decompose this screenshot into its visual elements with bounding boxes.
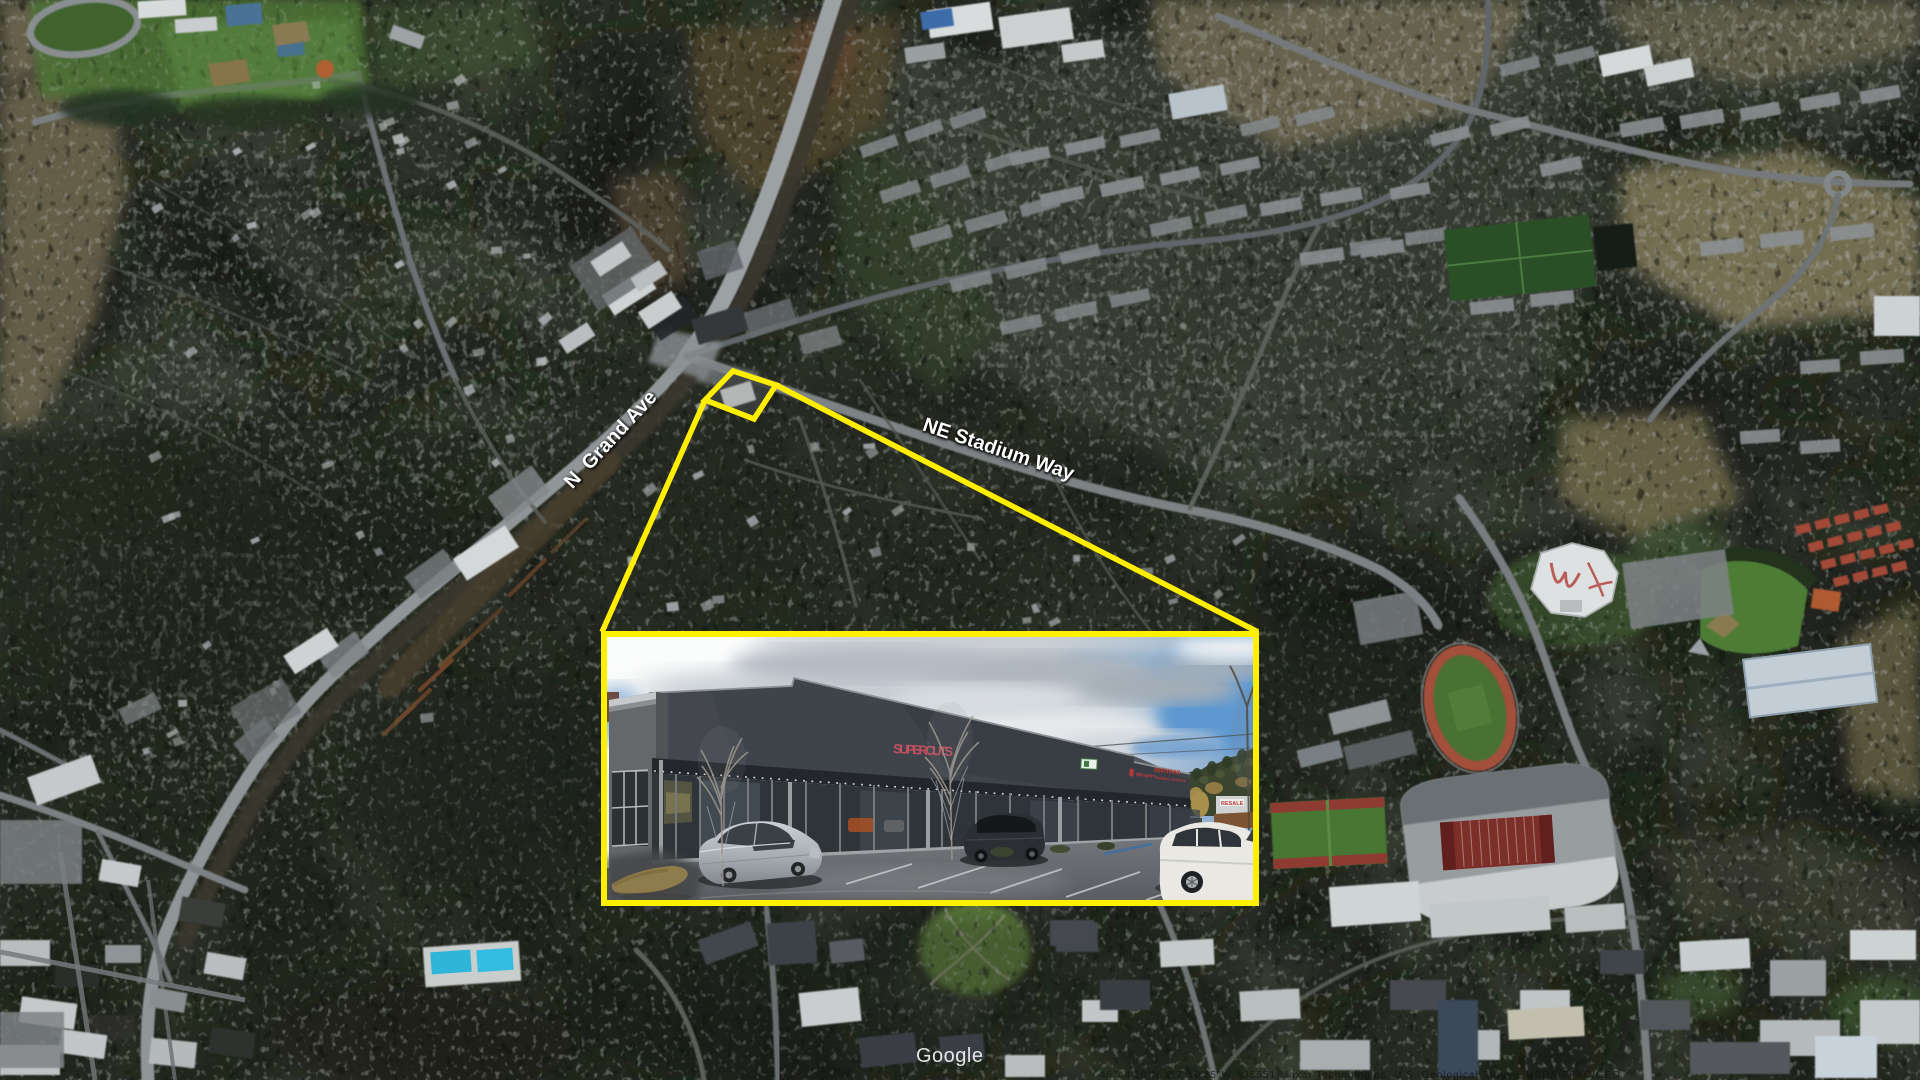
- svg-text:RESALE: RESALE: [1221, 801, 1244, 807]
